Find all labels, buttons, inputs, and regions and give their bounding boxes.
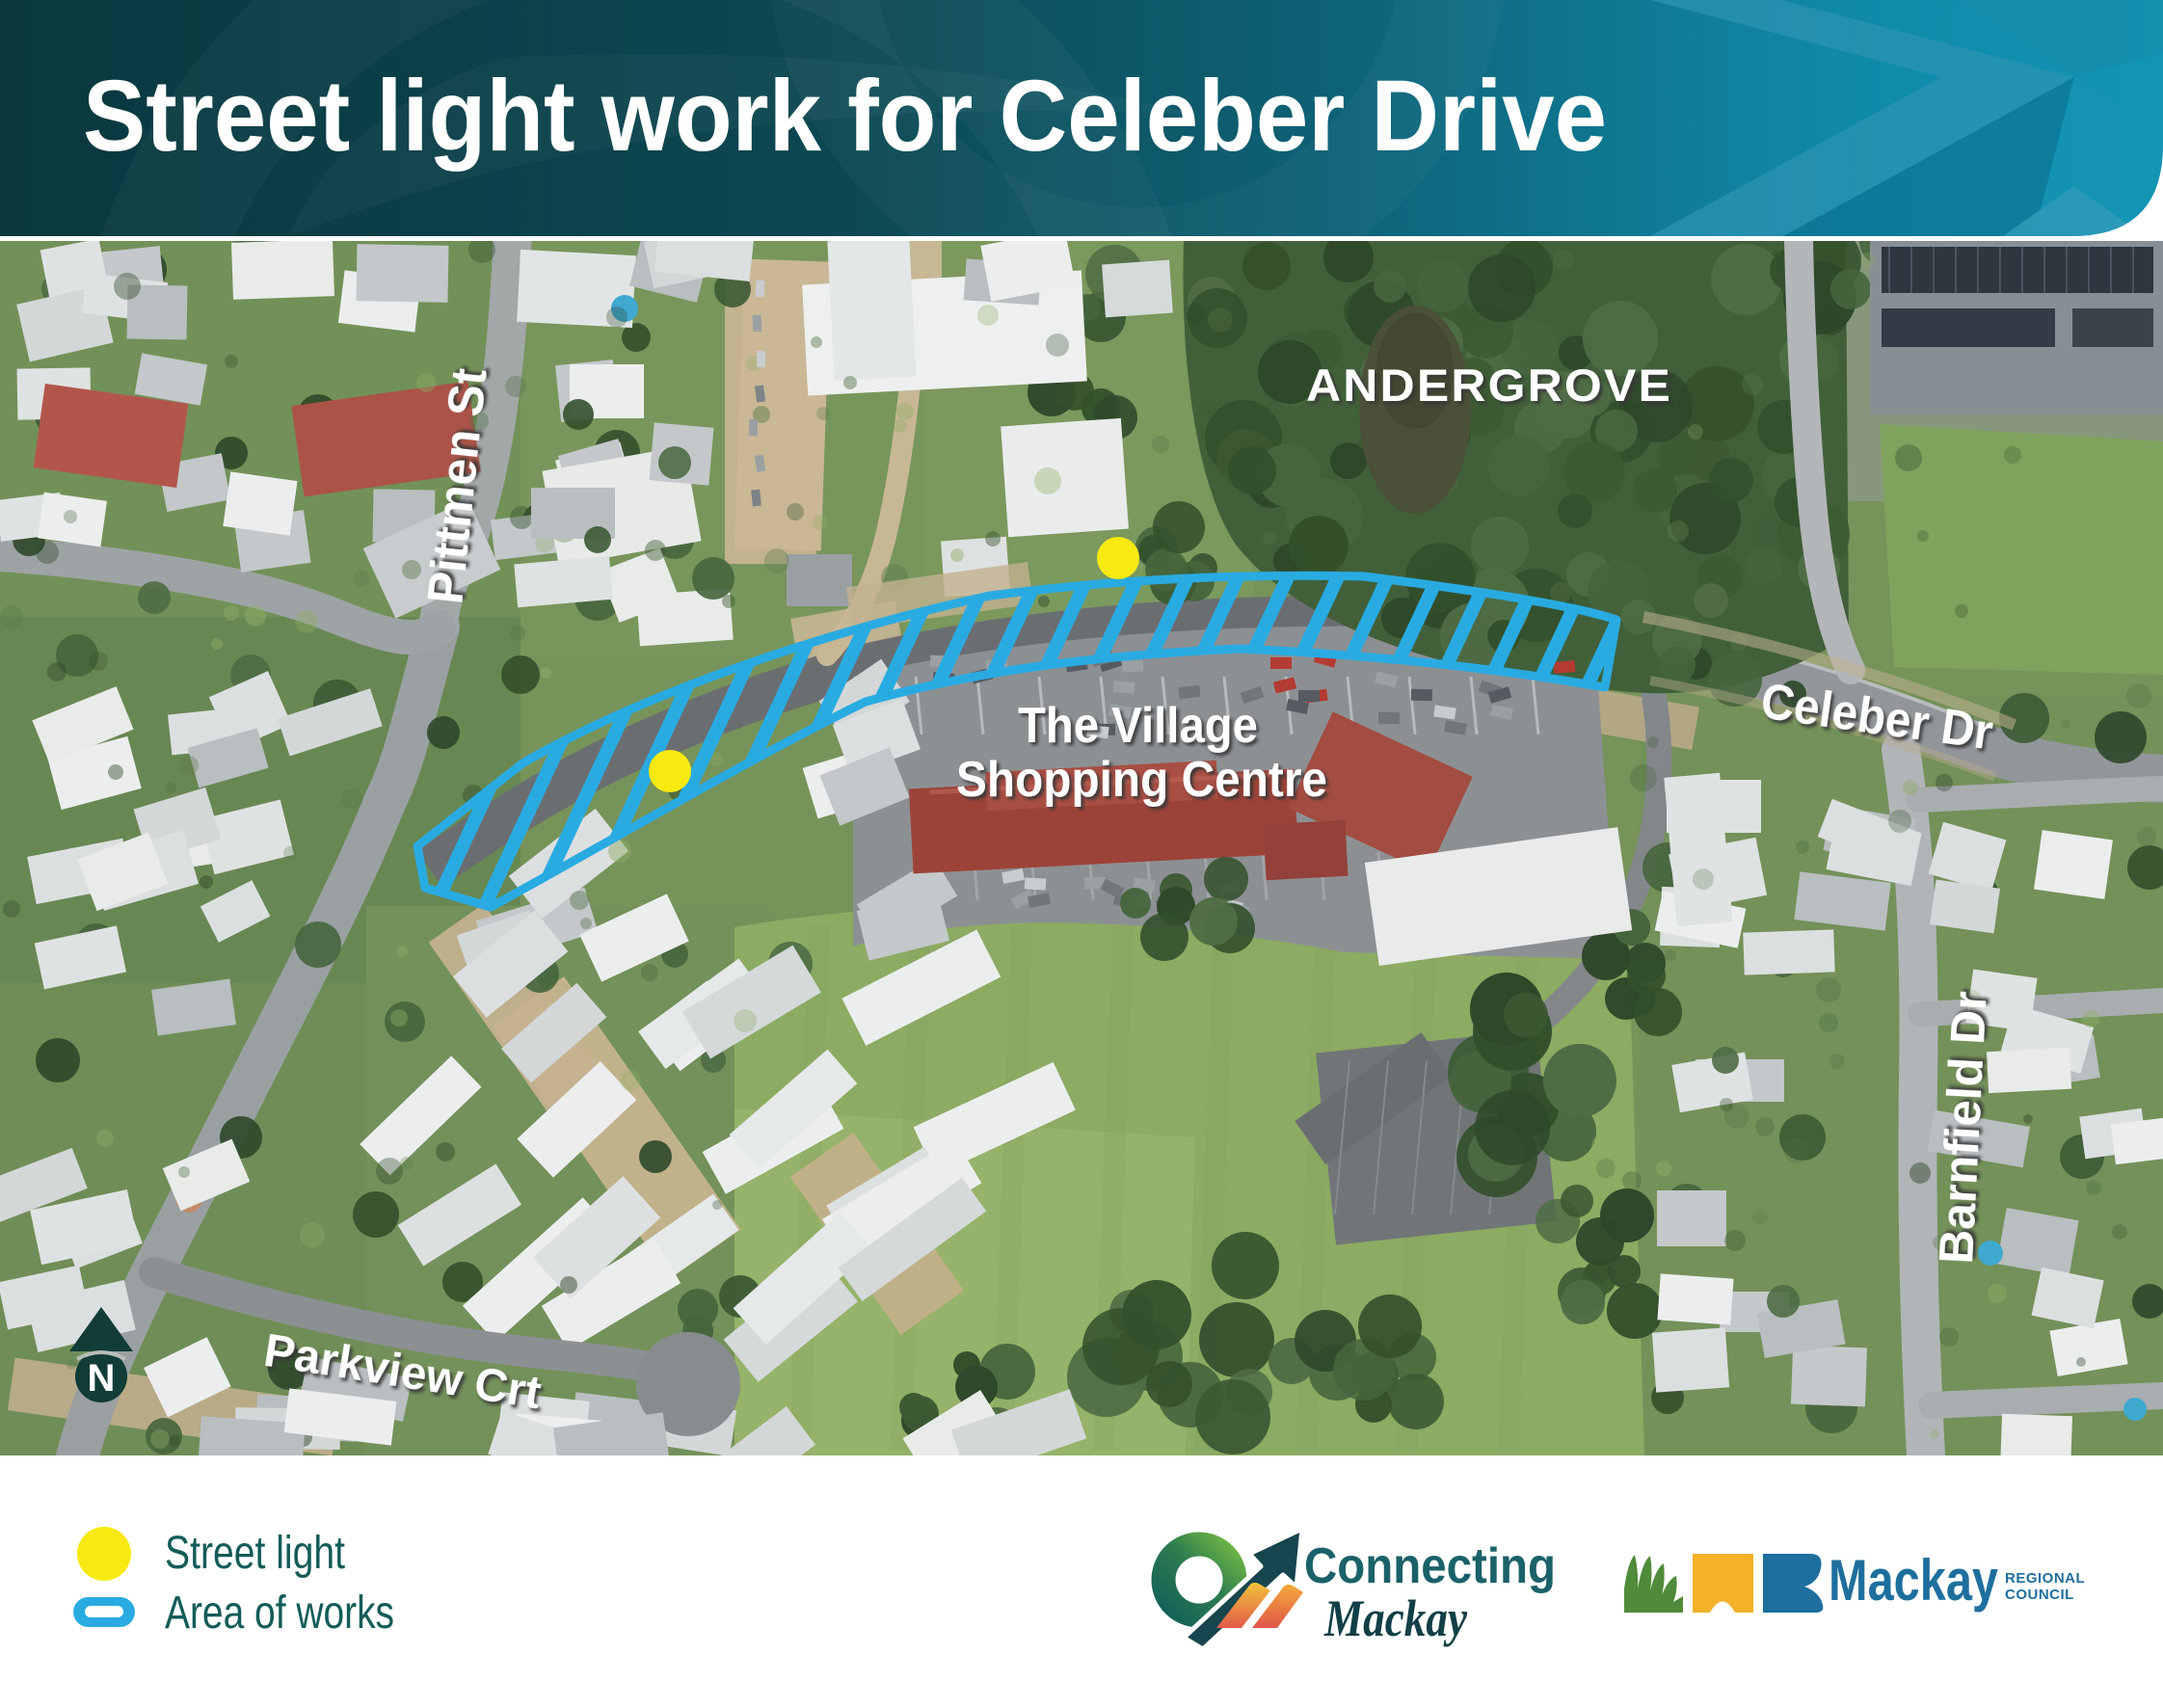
svg-text:Connecting: Connecting	[1304, 1538, 1556, 1594]
svg-text:N: N	[88, 1357, 116, 1400]
svg-text:REGIONAL: REGIONAL	[2005, 1570, 2085, 1587]
svg-text:The Village: The Village	[1018, 698, 1258, 754]
svg-text:COUNCIL: COUNCIL	[2005, 1587, 2074, 1603]
svg-text:ANDERGROVE: ANDERGROVE	[1306, 360, 1672, 411]
svg-text:Mackay: Mackay	[1323, 1589, 1468, 1647]
svg-text:Mackay: Mackay	[1829, 1548, 1999, 1613]
svg-text:Street light: Street light	[165, 1528, 345, 1579]
svg-text:Street light work for Celeber: Street light work for Celeber Drive	[83, 60, 1607, 173]
svg-text:Area of works: Area of works	[165, 1588, 394, 1639]
svg-text:Shopping Centre: Shopping Centre	[956, 752, 1327, 808]
